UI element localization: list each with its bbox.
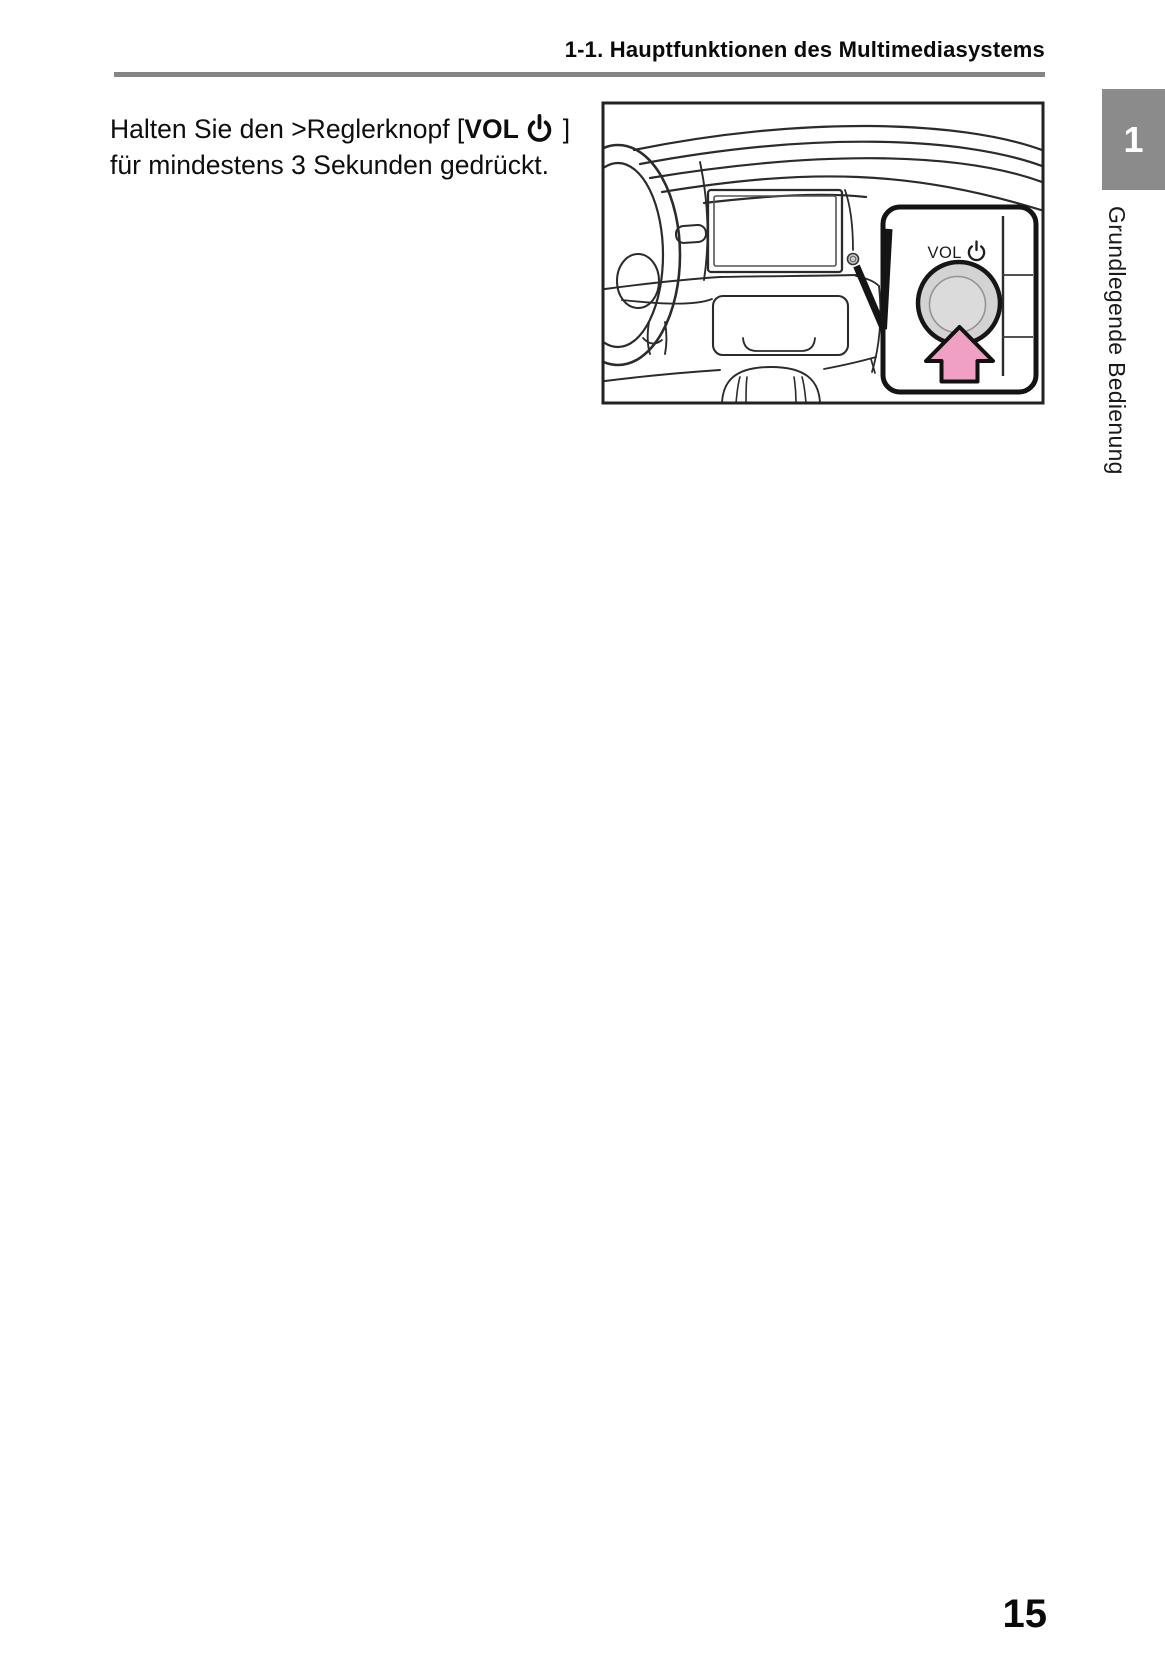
page-header: 1-1. Hauptfunktionen des Multimediasyste… — [120, 37, 1045, 63]
inset-vol-label: VOL — [927, 244, 962, 262]
power-icon — [525, 112, 554, 143]
header-rule — [114, 72, 1045, 77]
instruction-line-1: Halten Sie den >Reglerknopf [VOL ] — [110, 111, 610, 147]
vol-button-label: VOL — [464, 114, 518, 144]
page-number: 15 — [1003, 1592, 1048, 1637]
manual-page: 1-1. Hauptfunktionen des Multimediasyste… — [0, 0, 1165, 1653]
dashboard-illustration: VOL — [600, 100, 1046, 406]
multimedia-screen — [708, 190, 842, 272]
dashboard-figure-svg: VOL — [600, 100, 1046, 406]
volume-knob-inner — [930, 277, 986, 333]
chapter-tab-number: 1 — [1123, 119, 1143, 161]
console-tray — [713, 296, 848, 355]
dash-volume-knob — [848, 254, 859, 265]
chapter-title-vertical: Grundlegende Bedienung — [1103, 206, 1130, 486]
multimedia-screen-inner — [714, 196, 836, 266]
knob-inset-callout: VOL — [883, 207, 1036, 392]
instruction-line-2: für mindestens 3 Sekunden gedrückt. — [110, 147, 610, 183]
instruction-text: Halten Sie den >Reglerknopf [VOL ] für m… — [110, 111, 610, 183]
chapter-tab: 1 — [1102, 89, 1165, 190]
